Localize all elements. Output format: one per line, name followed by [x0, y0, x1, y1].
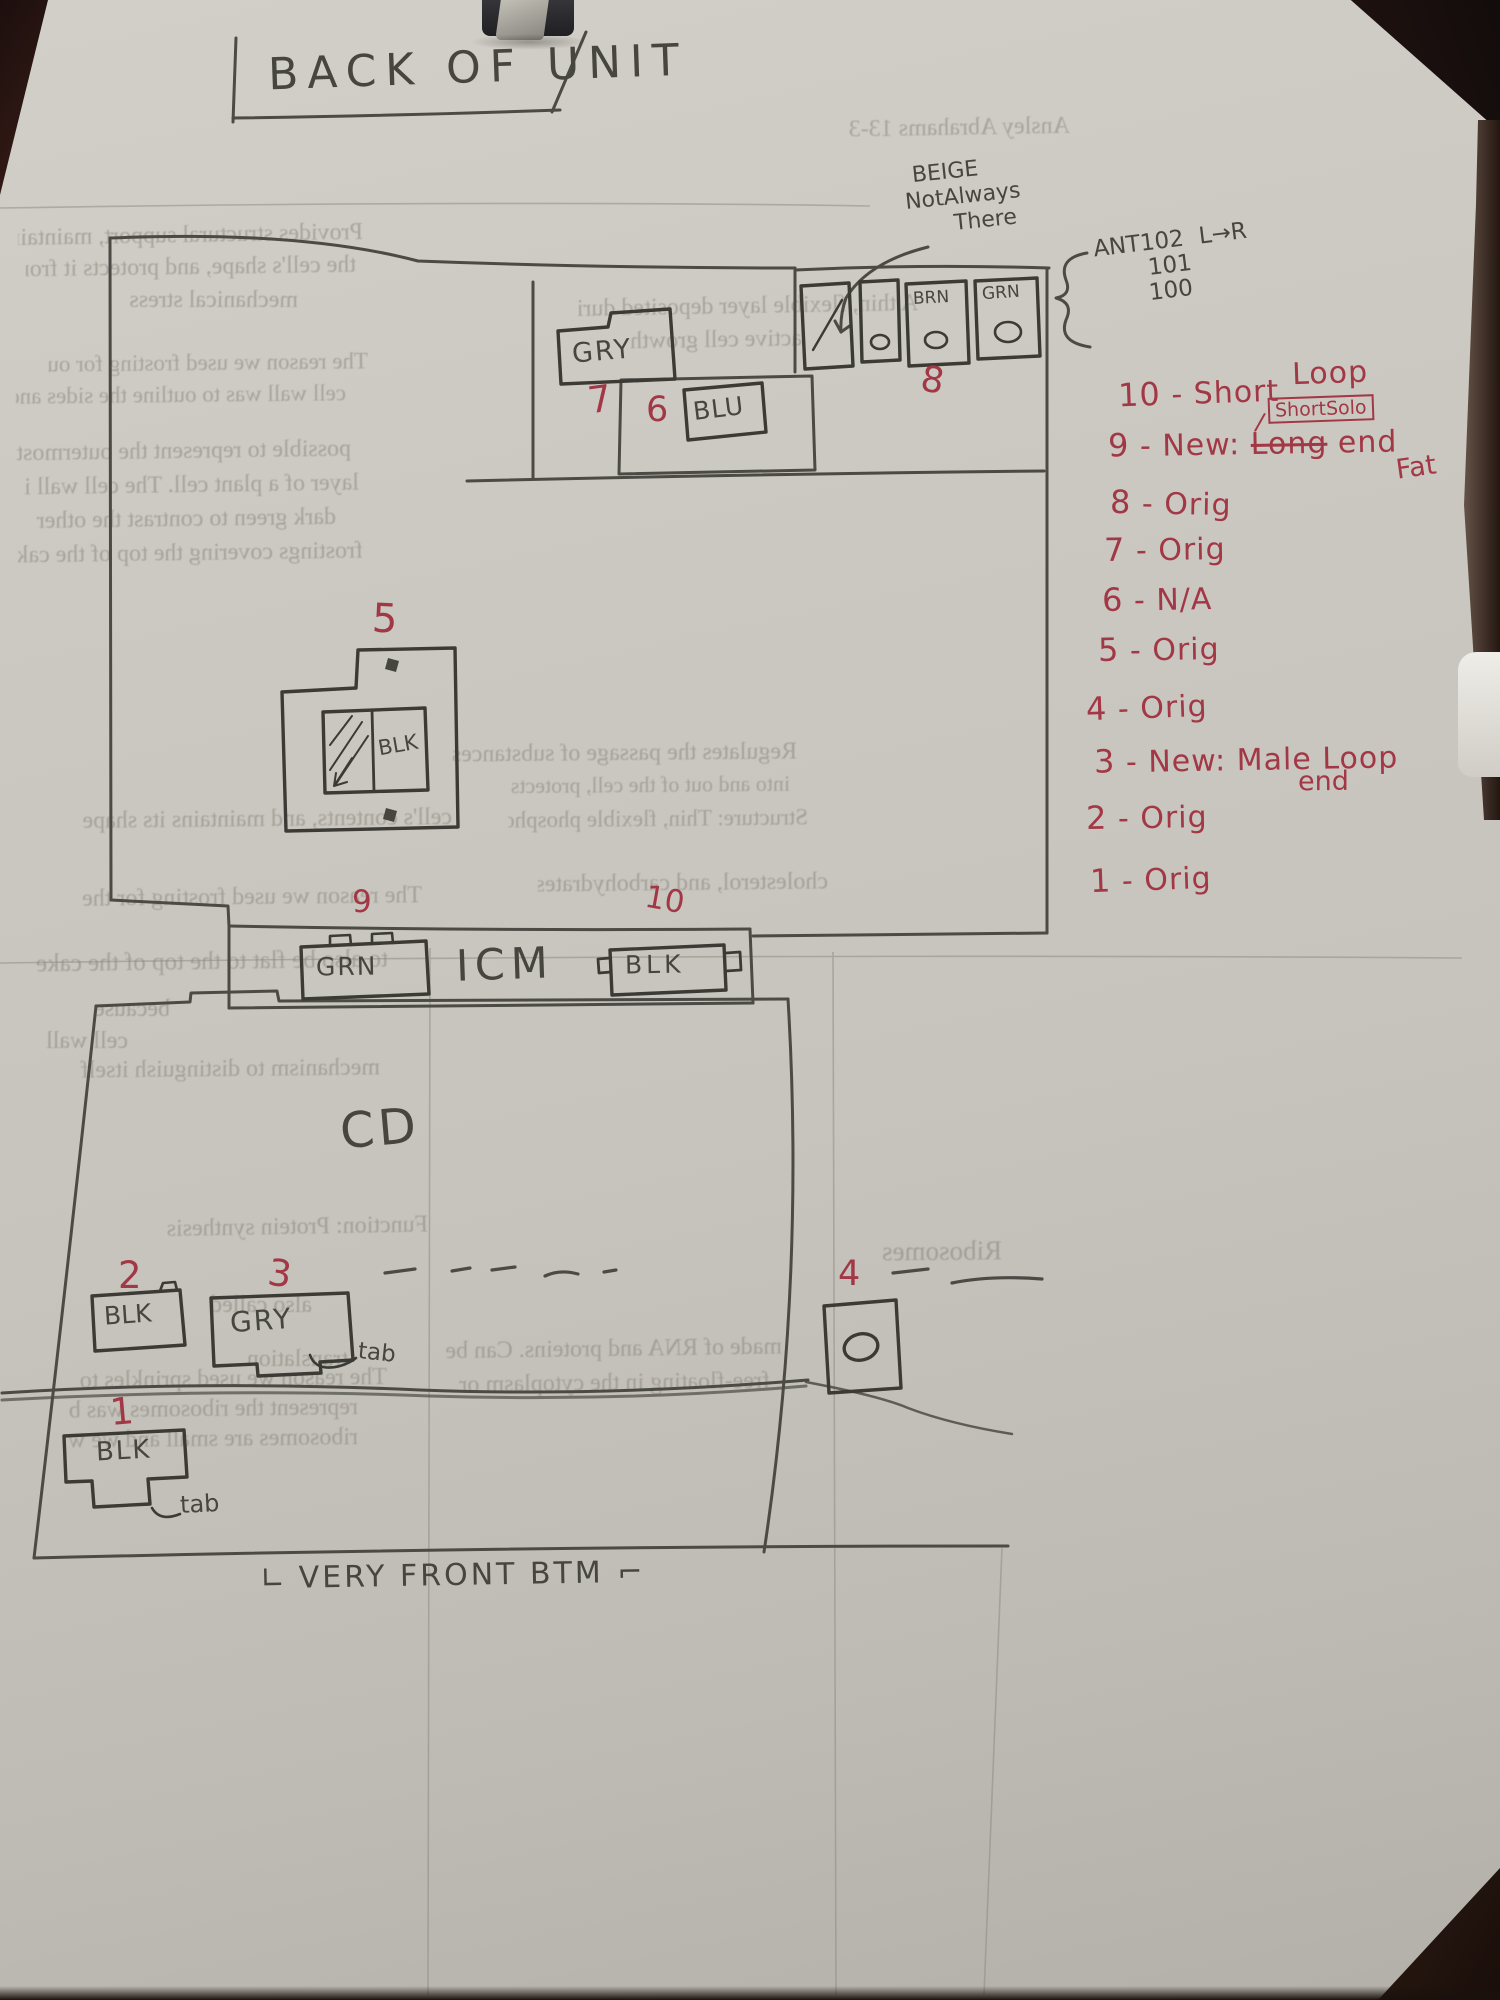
legend-item-8: 8 - Orig: [1110, 483, 1232, 523]
box-9-number: 9: [352, 884, 372, 920]
box-5-number: 5: [371, 595, 399, 642]
legend-num: 4: [1085, 689, 1108, 728]
box-3-label: GRY: [229, 1302, 294, 1339]
legend-num: 5: [1098, 631, 1120, 669]
scribble-line: [2, 1380, 1012, 1434]
footer-label: VERY FRONT BTM: [298, 1555, 604, 1595]
legend-item-2: 2 - Orig: [1086, 797, 1208, 837]
legend-num: 2: [1086, 799, 1108, 837]
box-5-bottom-dot-icon: [383, 808, 397, 822]
beige-note: BEIGE NotAlways There: [901, 152, 1024, 242]
box-2-label: BLK: [103, 1298, 152, 1330]
dashed-line: [385, 1267, 1042, 1283]
footer-prefix-bracket-icon: ∟: [260, 1561, 286, 1596]
legend-item-7: 7 - Orig: [1104, 529, 1226, 569]
legend-num: 1: [1089, 861, 1112, 900]
legend-text: - Orig: [1117, 689, 1208, 727]
legend-num: 9: [1108, 426, 1130, 464]
legend-item-5: 5 - Orig: [1098, 629, 1220, 669]
box-5-hatch-icon: [330, 716, 368, 786]
box-4-number: 4: [838, 1254, 860, 1294]
connector-hole-icon: [871, 335, 889, 349]
legend-text: - Orig: [1142, 486, 1232, 523]
legend-after: end: [1338, 424, 1398, 460]
legend-num: 8: [1110, 483, 1132, 521]
cd-label: CD: [338, 1097, 423, 1161]
footer-note: ∟ VERY FRONT BTM ⌐: [260, 1555, 643, 1597]
photo-of-hand-drawn-diagram: Ansley Abrahams 13-3 Provides structural…: [0, 0, 1500, 2000]
connector-hole-icon: [925, 332, 947, 348]
box-8c-label: BRN: [913, 287, 950, 309]
brace-icon: [1056, 253, 1090, 347]
box-1-number: 1: [108, 1389, 135, 1434]
box-1-tab-squiggle-icon: [152, 1508, 180, 1517]
box-8d-label: GRN: [981, 282, 1020, 305]
legend-item-9: 9 - New: Long end: [1108, 421, 1398, 464]
box-3-tab-label: tab: [357, 1338, 397, 1368]
box-5-top-dot-icon: [385, 658, 399, 672]
legend-item-3: 3 - New: Male Loop: [1094, 737, 1399, 780]
legend-item-4: 4 - Orig: [1085, 686, 1208, 728]
legend-num: 7: [1104, 531, 1126, 569]
white-object-right-edge: [1458, 652, 1500, 777]
legend-boxed-note: ShortSolo: [1268, 394, 1374, 424]
box-5-inner-divider: [372, 710, 374, 791]
icm-label: ICM: [455, 938, 554, 991]
legend-item-6: 6 - N/A: [1102, 579, 1213, 619]
legend-item-3-below: end: [1298, 766, 1349, 797]
legend-item-1: 1 - Orig: [1089, 858, 1212, 900]
legend-num: 10: [1117, 375, 1161, 414]
box-1-tab-label: tab: [179, 1489, 220, 1519]
legend-text: - Orig: [1130, 632, 1220, 669]
box-1-label: BLK: [95, 1435, 152, 1468]
box-9-label: GRN: [316, 951, 378, 981]
legend-text: - Short: [1171, 374, 1280, 413]
box-7-label: GRY: [571, 333, 634, 369]
sketch-strokes: [0, 0, 1500, 2000]
legend-text: - New:: [1140, 427, 1241, 464]
legend-text: - N/A: [1134, 582, 1213, 618]
box-5-outer: [282, 648, 458, 831]
legend-raised: Loop: [1292, 355, 1369, 393]
box-2-number: 2: [118, 1254, 142, 1297]
box-10-label: BLK: [625, 949, 685, 979]
legend-text: - Orig: [1136, 532, 1226, 569]
box-6-label: BLU: [691, 391, 745, 426]
box-4: [824, 1300, 901, 1393]
legend-text: - New: Male Loop: [1126, 740, 1399, 780]
connector-hole-icon: [995, 322, 1021, 342]
lower-panel-outline: [34, 991, 1008, 1558]
legend-text: - Orig: [1121, 861, 1212, 899]
table-edge-bottom: [0, 1986, 1500, 2000]
legend-num: 3: [1094, 742, 1116, 780]
legend-num: 6: [1102, 581, 1124, 619]
legend-item-9-below: Fat: [1394, 449, 1438, 485]
legend-text: - Orig: [1118, 800, 1208, 837]
binder-clip-shadow: [470, 34, 588, 50]
box-4-oval-icon: [841, 1330, 880, 1363]
footer-suffix-bracket-icon: ⌐: [617, 1555, 643, 1590]
box-10-number: 10: [642, 879, 687, 921]
box-6-number: 6: [646, 390, 668, 430]
legend-struck: Long: [1250, 426, 1327, 462]
